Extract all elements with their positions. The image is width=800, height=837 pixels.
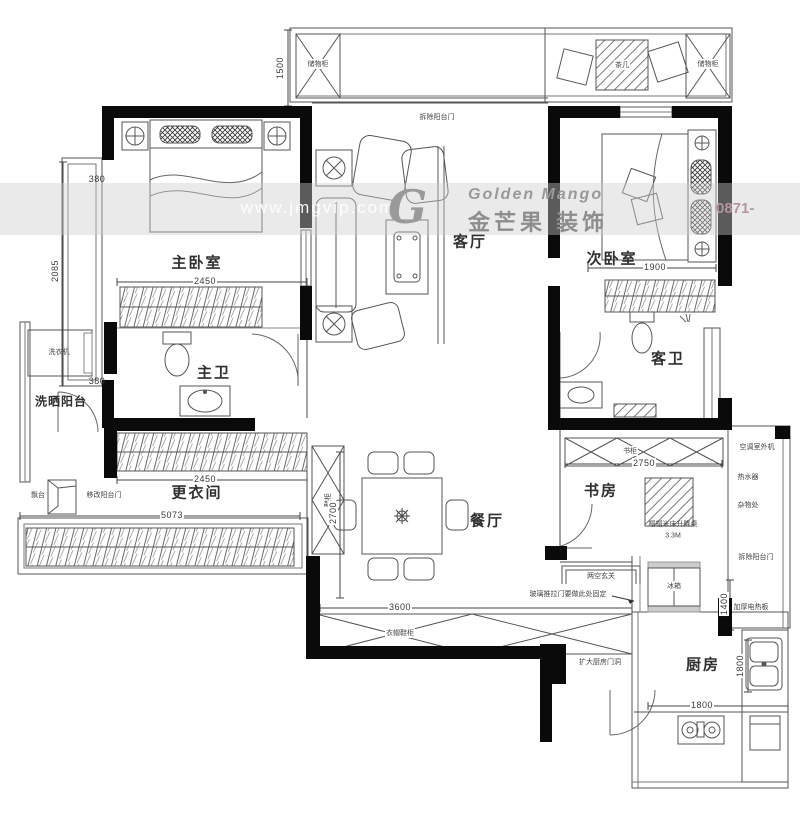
- master-toilet: [163, 332, 191, 376]
- dining-table: [334, 452, 468, 580]
- note-storage-cabinet-right: 储物柜: [697, 59, 720, 69]
- wall: [775, 426, 790, 439]
- wall: [300, 286, 312, 340]
- master-nightstands: [122, 122, 290, 150]
- brand-logo-icon: G: [388, 184, 427, 230]
- wall: [102, 106, 312, 118]
- stool: [48, 480, 76, 514]
- wall: [548, 286, 560, 422]
- note-sundry-area: 杂物处: [738, 500, 759, 510]
- master-wardrobe: [120, 287, 262, 327]
- balcony-closet: [26, 528, 294, 566]
- wall: [104, 418, 117, 478]
- wall: [540, 644, 566, 684]
- wall: [102, 106, 114, 160]
- wall: [545, 546, 567, 560]
- note-move-balcony-door: 移改阳台门: [87, 490, 122, 500]
- note-tatami-desk: 榻榻米床升降桌: [649, 519, 698, 529]
- note-glass-sliding-door: 玻璃推拉门要做此处固定: [530, 589, 607, 599]
- note-entry-cabinet: 两空玄关: [587, 571, 615, 581]
- note-bookcase: 书柜: [622, 446, 638, 456]
- note-tea-table: 茶几: [614, 60, 630, 70]
- dim-master-width: 2450: [193, 276, 217, 286]
- glass-door-pointer: [612, 596, 634, 604]
- guest-bath-door: [560, 332, 600, 378]
- top-balcony: [290, 28, 732, 103]
- room-label-master-bedroom: 主卧室: [171, 252, 222, 273]
- guest-vanity: [560, 382, 656, 417]
- wall: [560, 106, 620, 118]
- dim-second-width: 1900: [643, 262, 667, 272]
- bottom-left-balcony: [18, 518, 308, 574]
- note-demolish-balcony-door-top: 拆除阳台门: [420, 112, 455, 122]
- master-bath-door: [252, 334, 298, 386]
- dim-kitchen-top: 1400: [719, 592, 729, 616]
- laundry-window: [20, 322, 30, 482]
- note-bay-ledge: 飘台: [31, 490, 45, 500]
- dim-dining-depth: 2700: [328, 501, 338, 525]
- dressing-wardrobe: [117, 433, 307, 471]
- master-window: [301, 230, 311, 286]
- wall: [306, 646, 556, 659]
- study-door: [548, 504, 592, 548]
- note-washing-machine: 洗衣机: [49, 347, 70, 357]
- brand-name-cn: 金芒果 装饰: [468, 205, 608, 237]
- room-label-study: 书房: [584, 480, 618, 501]
- dim-bay-height: 2085: [50, 260, 60, 282]
- room-label-guest-bath: 客卫: [651, 348, 685, 369]
- master-vanity: [180, 386, 230, 416]
- note-electric-heater: 加厚电热板: [734, 602, 769, 612]
- room-label-dining-room: 餐厅: [470, 510, 504, 531]
- wall: [704, 418, 732, 430]
- dim-kitchen-sink-run: 1800: [735, 654, 745, 678]
- dim-bay-bottom: 380: [89, 376, 106, 386]
- second-wardrobe: [605, 280, 715, 312]
- floor-plan: www.jmgvip.com G Golden Mango 金芒果 装饰 087…: [0, 0, 800, 837]
- shower-head: [680, 314, 690, 322]
- dim-kitchen-width: 1800: [690, 700, 714, 710]
- wall: [104, 322, 117, 374]
- note-fridge: 冰箱: [666, 581, 682, 591]
- sofa-set: [316, 134, 449, 351]
- dim-study-width: 2750: [632, 458, 656, 468]
- brand-name-en: Golden Mango: [468, 186, 603, 204]
- wall: [718, 398, 732, 420]
- dim-balcony-depth: 1500: [275, 57, 285, 79]
- kitchen-door: [610, 690, 655, 735]
- room-label-living-room: 客厅: [453, 231, 487, 252]
- brand-phone: 0871-: [716, 200, 754, 217]
- service-balcony: [728, 426, 790, 628]
- note-enlarge-kitchen-doorway: 扩大厨房门洞: [579, 657, 621, 667]
- room-label-second-bedroom: 次卧室: [586, 248, 637, 269]
- dim-dining-width: 3600: [388, 602, 412, 612]
- dim-bay-top: 380: [89, 174, 106, 184]
- note-tatami-area: 3.3M: [665, 533, 681, 540]
- stove: [678, 716, 724, 744]
- dim-dressing-width: 2450: [193, 474, 217, 484]
- second-bedroom-window: [620, 107, 672, 117]
- watermark-url: www.jmgvip.com: [241, 198, 396, 218]
- room-label-master-bath: 主卫: [197, 362, 231, 383]
- plant-boxes: [316, 150, 352, 342]
- room-label-dressing-room: 更衣间: [171, 482, 222, 503]
- note-coat-shoe-cabinet: 衣帽鞋柜: [385, 628, 415, 638]
- room-label-kitchen: 厨房: [686, 654, 720, 675]
- note-ac-outdoor-unit: 空调室外机: [740, 442, 775, 452]
- note-storage-cabinet-left: 储物柜: [307, 59, 330, 69]
- wall: [306, 556, 320, 658]
- room-label-laundry-balcony: 洗晒阳台: [35, 393, 87, 410]
- wall: [540, 684, 552, 742]
- wall: [548, 418, 704, 430]
- note-water-heater: 热水器: [738, 472, 759, 482]
- wall: [117, 418, 255, 431]
- dim-left-total: 5073: [160, 510, 184, 520]
- tv-cabinet: [438, 146, 444, 344]
- note-demolish-balcony-door-right: 拆除阳台门: [739, 552, 774, 562]
